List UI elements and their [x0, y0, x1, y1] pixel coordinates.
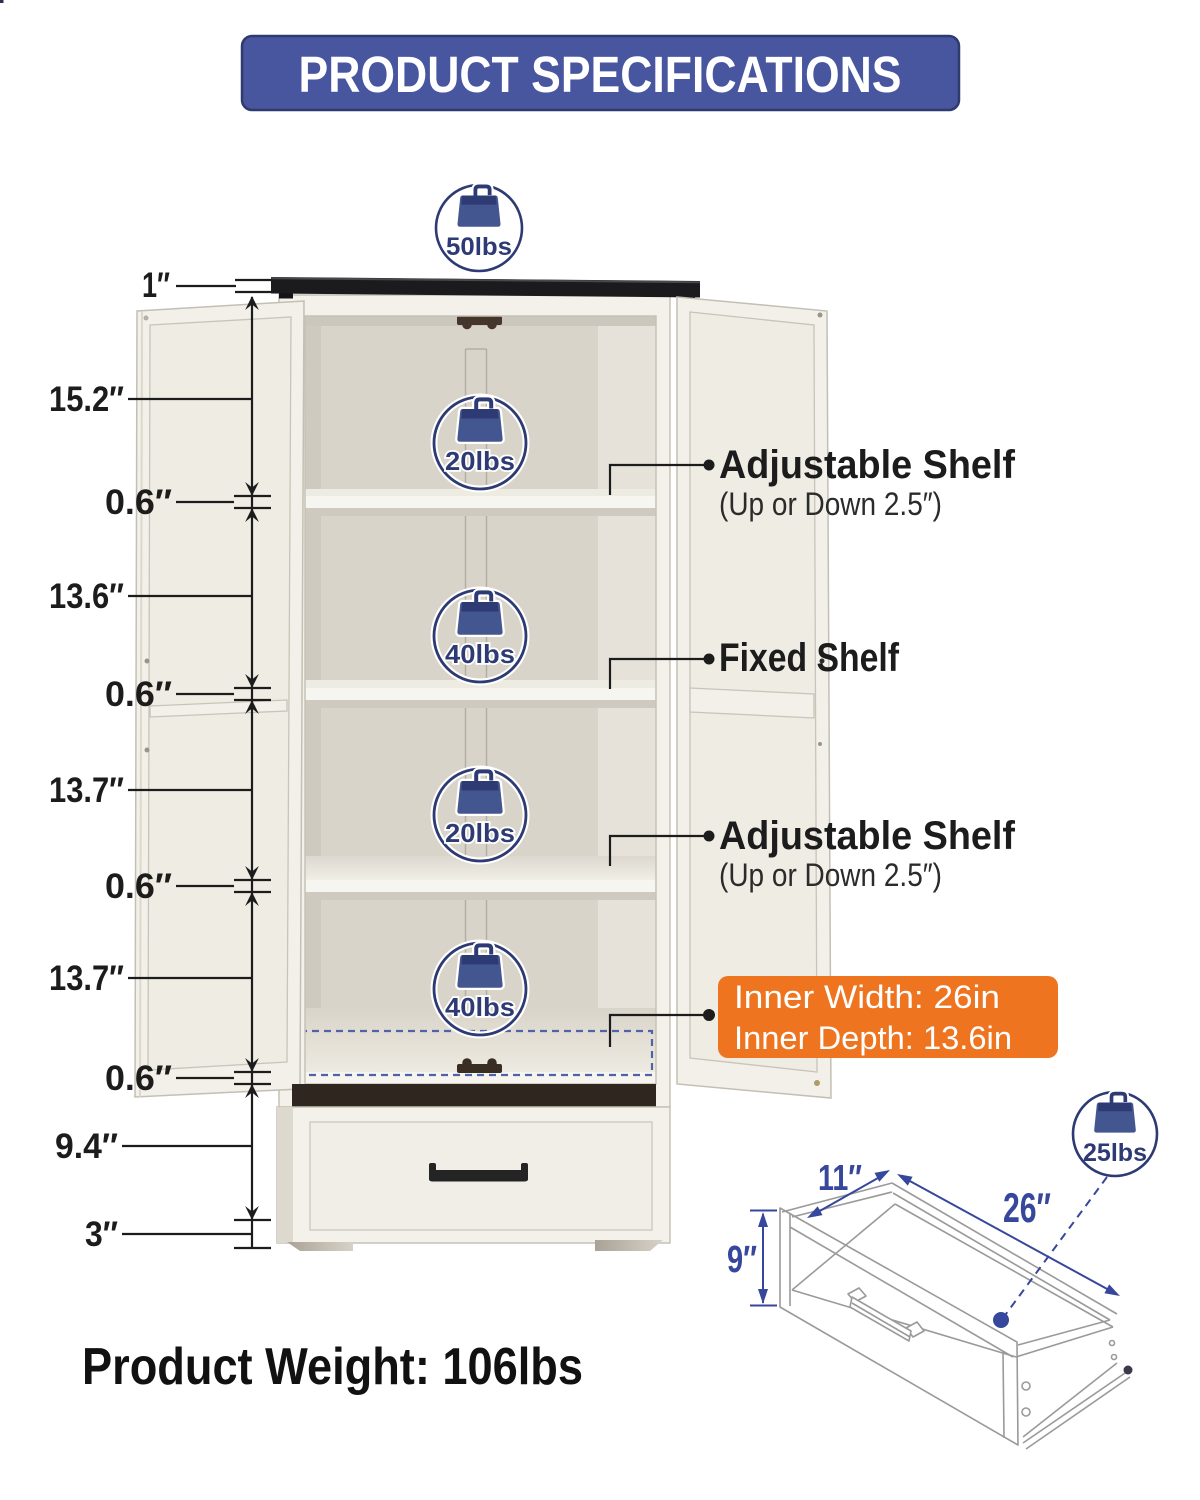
svg-text:Adjustable Shelf: Adjustable Shelf — [719, 443, 1016, 487]
svg-text:1″: 1″ — [142, 265, 170, 305]
svg-text:Inner Width: 26in: Inner Width: 26in — [734, 979, 1000, 1015]
svg-text:3″: 3″ — [85, 1214, 118, 1254]
svg-text:40lbs: 40lbs — [445, 639, 515, 669]
svg-text:0.6″: 0.6″ — [105, 482, 172, 522]
svg-text:20lbs: 20lbs — [445, 446, 515, 476]
svg-text:0.6″: 0.6″ — [105, 866, 172, 906]
svg-text:20lbs: 20lbs — [445, 818, 515, 848]
svg-text:13.7″: 13.7″ — [49, 770, 124, 810]
svg-text:11″: 11″ — [818, 1157, 862, 1198]
svg-text:9.4″: 9.4″ — [55, 1126, 118, 1166]
svg-text:(Up or Down 2.5″): (Up or Down 2.5″) — [719, 486, 942, 522]
svg-text:0.6″: 0.6″ — [105, 1058, 172, 1098]
svg-text:PRODUCT SPECIFICATIONS: PRODUCT SPECIFICATIONS — [299, 46, 902, 103]
svg-text:Inner Depth: 13.6in: Inner Depth: 13.6in — [734, 1020, 1012, 1056]
svg-text:40lbs: 40lbs — [445, 992, 515, 1022]
svg-text:Adjustable Shelf: Adjustable Shelf — [719, 814, 1016, 858]
svg-text:13.7″: 13.7″ — [49, 958, 124, 998]
svg-text:50lbs: 50lbs — [446, 233, 512, 261]
svg-text:15.2″: 15.2″ — [49, 379, 124, 419]
svg-text:(Up or Down 2.5″): (Up or Down 2.5″) — [719, 857, 942, 893]
svg-text:13.6″: 13.6″ — [49, 576, 124, 616]
svg-text:25lbs: 25lbs — [1083, 1139, 1147, 1167]
svg-text:Product Weight: 106lbs: Product Weight: 106lbs — [82, 1338, 583, 1396]
svg-text:26″: 26″ — [1003, 1184, 1051, 1231]
svg-text:Fixed Shelf: Fixed Shelf — [719, 636, 900, 680]
svg-text:9″: 9″ — [727, 1239, 757, 1281]
svg-text:0.6″: 0.6″ — [105, 674, 172, 714]
